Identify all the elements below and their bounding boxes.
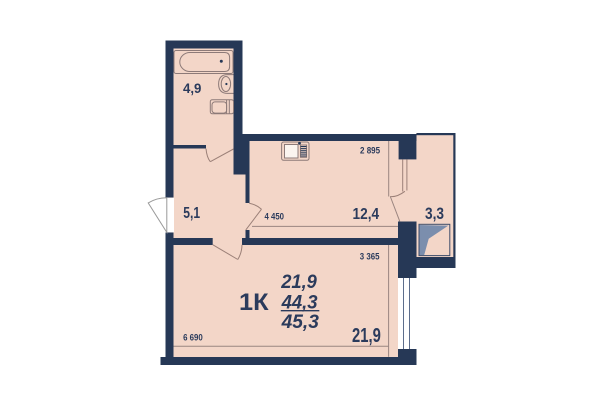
svg-text:3,3: 3,3 [425,205,444,223]
svg-text:2 895: 2 895 [360,145,380,155]
svg-text:12,4: 12,4 [353,205,380,223]
svg-text:3 365: 3 365 [360,252,380,262]
svg-text:5,1: 5,1 [183,205,200,222]
svg-text:21,9: 21,9 [352,325,381,347]
svg-text:6 690: 6 690 [183,332,203,342]
svg-text:4,9: 4,9 [183,81,202,96]
svg-text:21,9: 21,9 [280,271,317,293]
svg-text:1К: 1К [239,289,269,316]
svg-text:45,3: 45,3 [281,311,319,333]
svg-text:4 450: 4 450 [265,212,285,222]
